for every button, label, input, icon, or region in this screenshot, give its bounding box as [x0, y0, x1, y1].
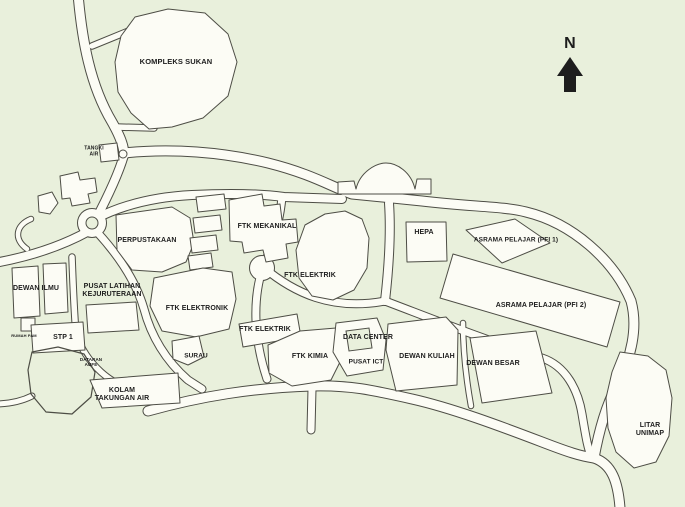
building-dome-structure — [338, 163, 431, 194]
building-hepa — [406, 222, 447, 262]
building-dewan-ilmu-a — [12, 266, 40, 318]
building-pusat-latihan — [86, 302, 139, 333]
litar-unimap-area — [606, 352, 672, 468]
building-ftk-elektrik-north — [296, 211, 369, 300]
building-dewan-ilmu-b — [43, 263, 68, 314]
building-workshop-1 — [196, 194, 226, 212]
building-ftk-mekanikal — [229, 194, 298, 262]
building-unlabeled-west-1 — [60, 172, 97, 206]
building-kompleks-sukan — [115, 9, 237, 129]
campus-map-drawing — [0, 0, 685, 507]
roundabout — [86, 217, 98, 229]
building-perpustakaan — [116, 207, 194, 272]
water-tank — [119, 150, 127, 158]
building-workshop-4 — [188, 253, 213, 270]
building-asrama-pfi-1 — [466, 219, 550, 263]
building-tangki-air — [99, 143, 119, 162]
data-center-courtyard — [346, 328, 372, 351]
building-surau — [172, 336, 204, 365]
campus-map: KOMPLEKS SUKAN TANGKI AIR PERPUSTAKAAN F… — [0, 0, 685, 507]
building-workshop-2 — [193, 215, 222, 233]
building-workshop-3 — [190, 235, 218, 253]
building-unlabeled-west-2 — [38, 192, 58, 214]
building-dewan-besar — [470, 331, 552, 403]
building-ftk-elektronik — [150, 268, 236, 337]
building-stp-1 — [31, 322, 85, 353]
north-arrow-icon — [557, 57, 583, 92]
building-dewan-kuliah — [386, 317, 458, 391]
